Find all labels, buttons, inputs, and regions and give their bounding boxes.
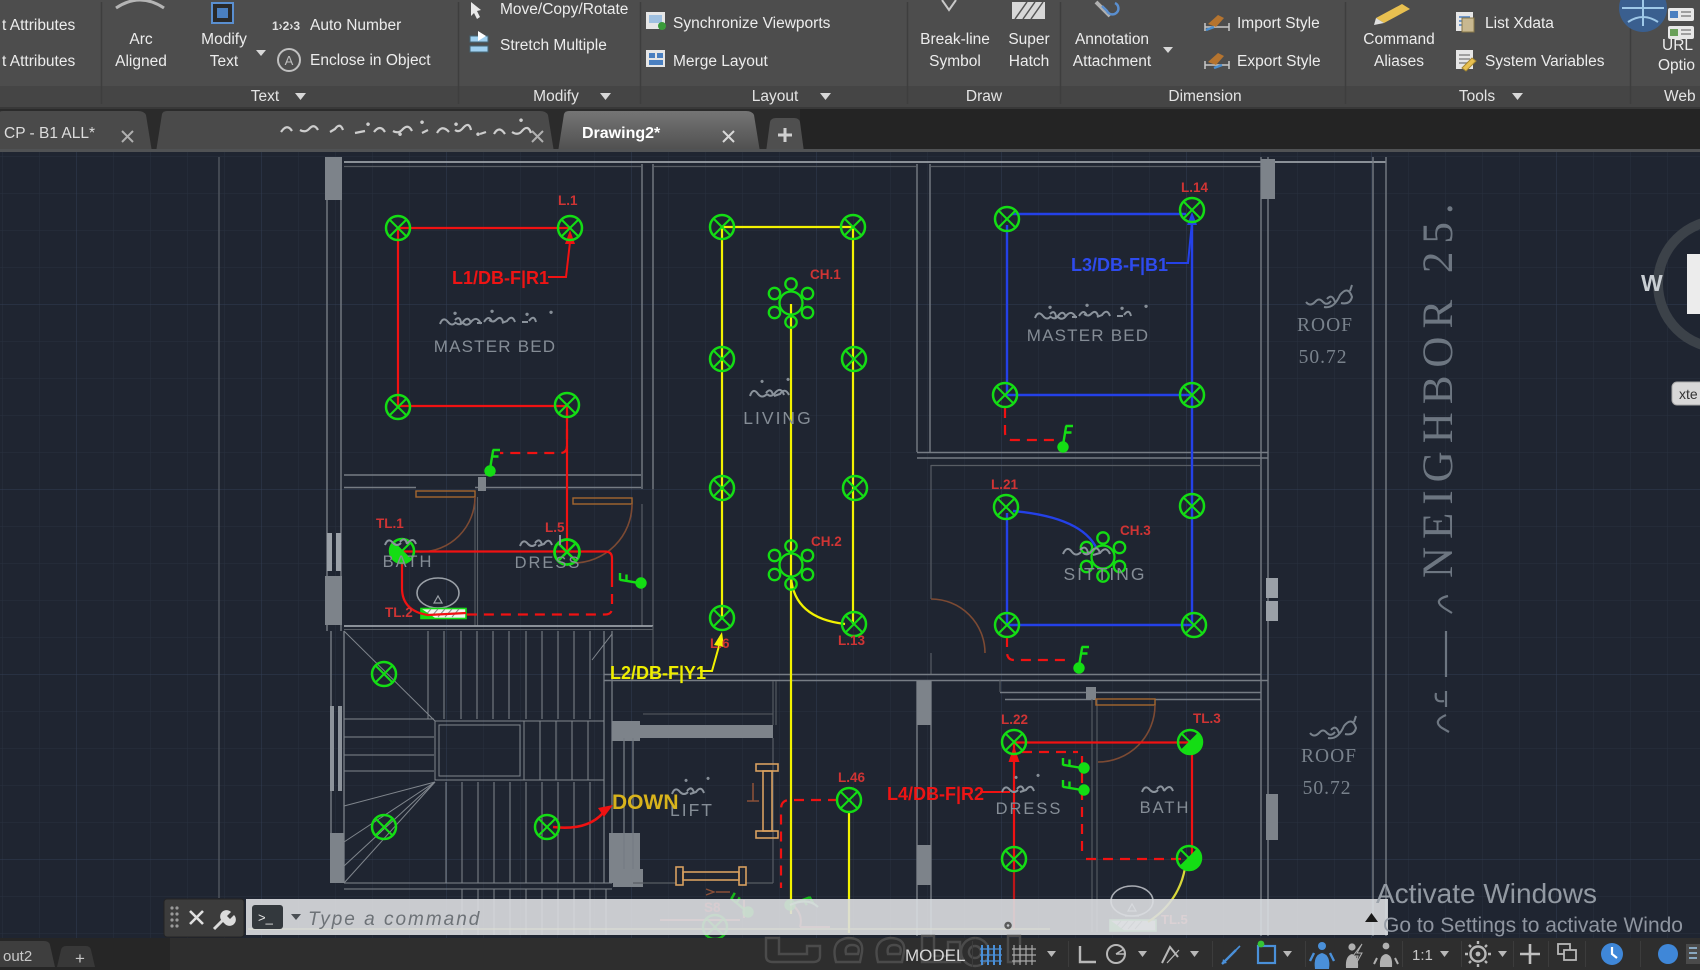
svg-text:Move/Copy/Rotate: Move/Copy/Rotate — [500, 1, 628, 18]
svg-text:L.46: L.46 — [838, 770, 866, 785]
svg-text:Text: Text — [210, 53, 239, 70]
svg-text:MODEL: MODEL — [905, 946, 965, 965]
svg-text:Export Style: Export Style — [1237, 53, 1321, 70]
svg-text:CH.2: CH.2 — [811, 534, 842, 549]
svg-text:Web: Web — [1664, 88, 1696, 105]
svg-text:Draw: Draw — [966, 88, 1003, 105]
svg-text:Type a command: Type a command — [308, 909, 481, 930]
svg-text:t Attributes: t Attributes — [2, 53, 75, 70]
svg-text:LIVING: LIVING — [743, 408, 812, 428]
svg-text:L.14: L.14 — [1181, 180, 1209, 195]
svg-text:BATH: BATH — [1140, 799, 1191, 817]
svg-text:Annotation: Annotation — [1075, 31, 1149, 48]
svg-text:t Attributes: t Attributes — [2, 17, 75, 34]
svg-text:L.1: L.1 — [558, 193, 578, 208]
svg-text:50.72: 50.72 — [1303, 778, 1352, 799]
svg-text:Activate Windows: Activate Windows — [1376, 878, 1597, 909]
svg-text:L2/DB-F|Y1: L2/DB-F|Y1 — [610, 663, 706, 683]
svg-text:Drawing2*: Drawing2* — [582, 125, 661, 142]
svg-text:Command: Command — [1363, 31, 1435, 48]
svg-text:L4/DB-F|R2: L4/DB-F|R2 — [887, 784, 984, 804]
svg-text:ROOF: ROOF — [1301, 746, 1357, 767]
svg-text:DRESS: DRESS — [515, 554, 582, 572]
svg-text:DRESS: DRESS — [996, 800, 1063, 818]
svg-text:Hatch: Hatch — [1009, 53, 1050, 70]
svg-text:+: + — [75, 949, 85, 968]
svg-text:TL.2: TL.2 — [385, 605, 413, 620]
svg-text:Attachment: Attachment — [1073, 53, 1152, 70]
svg-text:>_: >_ — [258, 910, 274, 925]
svg-text:CH.3: CH.3 — [1120, 523, 1151, 538]
svg-text:Break-line: Break-line — [920, 31, 990, 48]
svg-text:Text: Text — [251, 88, 280, 105]
svg-text:1:1: 1:1 — [1412, 947, 1433, 964]
svg-text:L.6: L.6 — [710, 636, 730, 651]
svg-text:Aligned: Aligned — [115, 53, 167, 70]
svg-text:Import Style: Import Style — [1237, 15, 1320, 32]
svg-text:CP - B1 ALL*: CP - B1 ALL* — [4, 125, 95, 142]
svg-text:out2: out2 — [3, 948, 32, 965]
svg-text:L.21: L.21 — [991, 477, 1019, 492]
svg-text:SITTING: SITTING — [1063, 564, 1146, 584]
svg-text:Layout: Layout — [752, 88, 799, 105]
svg-text:L.22: L.22 — [1001, 712, 1028, 727]
svg-text:MASTER BED: MASTER BED — [1027, 326, 1150, 345]
svg-text:NEIGHBOR 25.: NEIGHBOR 25. — [1415, 195, 1462, 578]
svg-text:DOWN: DOWN — [612, 791, 679, 814]
svg-text:Enclose in Object: Enclose in Object — [310, 52, 431, 69]
svg-text:TL.3: TL.3 — [1193, 711, 1221, 726]
svg-text:Optio: Optio — [1658, 57, 1695, 74]
svg-text:TL.1: TL.1 — [376, 516, 404, 531]
svg-text:Stretch Multiple: Stretch Multiple — [500, 37, 607, 54]
svg-text:URL: URL — [1662, 37, 1693, 54]
svg-text:Aliases: Aliases — [1374, 53, 1424, 70]
svg-text:List Xdata: List Xdata — [1485, 15, 1554, 32]
svg-text:50.72: 50.72 — [1299, 347, 1348, 368]
svg-text:Go to Settings to activate Win: Go to Settings to activate Windo — [1383, 914, 1683, 937]
svg-text:Merge Layout: Merge Layout — [673, 53, 768, 70]
svg-text:L1/DB-F|R1: L1/DB-F|R1 — [452, 268, 549, 288]
svg-text:W: W — [1641, 270, 1663, 296]
svg-text:A: A — [285, 53, 294, 68]
svg-text:MASTER BED: MASTER BED — [434, 337, 557, 356]
svg-text:Modify: Modify — [533, 88, 579, 105]
svg-text:Auto Number: Auto Number — [310, 17, 401, 34]
svg-text:Tools: Tools — [1459, 88, 1495, 105]
svg-text:CH.1: CH.1 — [810, 267, 841, 282]
svg-text:L3/DB-F|B1: L3/DB-F|B1 — [1071, 255, 1168, 275]
svg-text:System Variables: System Variables — [1485, 53, 1605, 70]
svg-text:BATH: BATH — [383, 553, 434, 571]
svg-text:xte: xte — [1679, 386, 1698, 402]
svg-text:1›2›3: 1›2›3 — [272, 19, 300, 33]
svg-text:Super: Super — [1008, 31, 1049, 48]
svg-text:ROOF: ROOF — [1297, 315, 1353, 336]
svg-text:Arc: Arc — [129, 31, 153, 48]
svg-text:Synchronize Viewports: Synchronize Viewports — [673, 15, 831, 32]
svg-text:L.5: L.5 — [545, 520, 565, 535]
svg-text:Modify: Modify — [201, 31, 247, 48]
svg-text:Dimension: Dimension — [1168, 88, 1241, 105]
svg-text:Symbol: Symbol — [929, 53, 981, 70]
svg-text:L.13: L.13 — [838, 633, 866, 648]
